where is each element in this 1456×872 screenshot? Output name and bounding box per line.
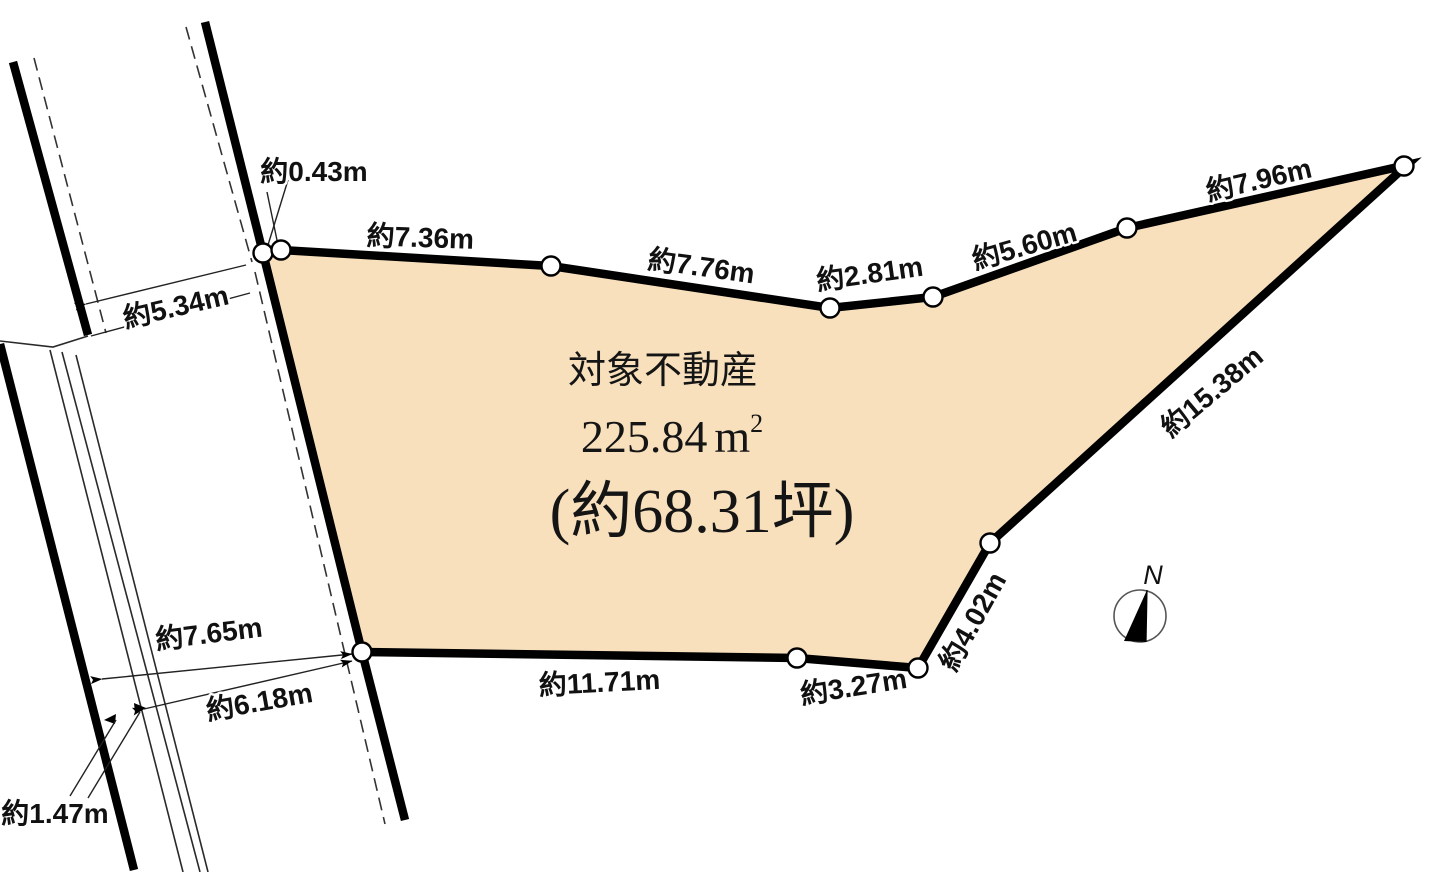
vertex-marker	[353, 643, 372, 662]
road-edge-line	[0, 344, 134, 870]
parcel-area-tsubo: (約68.31坪)	[550, 478, 855, 546]
side-road-edge-line	[0, 336, 88, 347]
parcel-title: 対象不動産	[568, 350, 758, 392]
vertex-marker	[909, 659, 928, 678]
road-edge-line	[362, 652, 405, 820]
dim-label-1-47: 約1.47m	[1, 797, 108, 829]
dimension-line-7-65	[102, 654, 352, 679]
vertex-marker	[788, 649, 807, 668]
vertex-marker	[254, 244, 273, 263]
dim-label-6-18: 約6.18m	[204, 676, 315, 726]
road-edge-line	[205, 22, 263, 253]
site-plan-svg: 約0.43m 約7.36m 約7.76m 約2.81m 約5.60m 約7.96…	[0, 0, 1456, 872]
road-inner-line	[62, 352, 200, 872]
road-boundary-dashed-line	[34, 58, 106, 333]
area-unit: m	[714, 411, 750, 462]
vertex-marker	[272, 241, 291, 260]
north-label: N	[1143, 560, 1163, 590]
dim-label-2-81: 約2.81m	[814, 250, 925, 297]
dim-label-7-36: 約7.36m	[366, 219, 474, 255]
vertex-marker	[1395, 157, 1414, 176]
north-compass: N	[1114, 560, 1166, 642]
road-inner-line	[76, 355, 208, 872]
parcel-area-m2: 225.84m2	[581, 409, 763, 462]
road-edge-line	[13, 62, 88, 335]
dim-label-5-34: 約5.34m	[120, 279, 232, 334]
area-value: 225.84	[581, 411, 708, 462]
vertex-marker	[821, 299, 840, 318]
vertex-marker	[1118, 219, 1137, 238]
dim-label-3-27: 約3.27m	[798, 662, 909, 710]
vertex-marker	[542, 257, 561, 276]
vertex-marker	[924, 288, 943, 307]
area-unit-sup: 2	[750, 409, 763, 438]
dim-label-0-43: 約0.43m	[260, 155, 367, 187]
vertex-marker	[981, 534, 1000, 553]
dim-label-11-71: 約11.71m	[538, 663, 661, 701]
dim-label-7-65: 約7.65m	[154, 611, 265, 656]
